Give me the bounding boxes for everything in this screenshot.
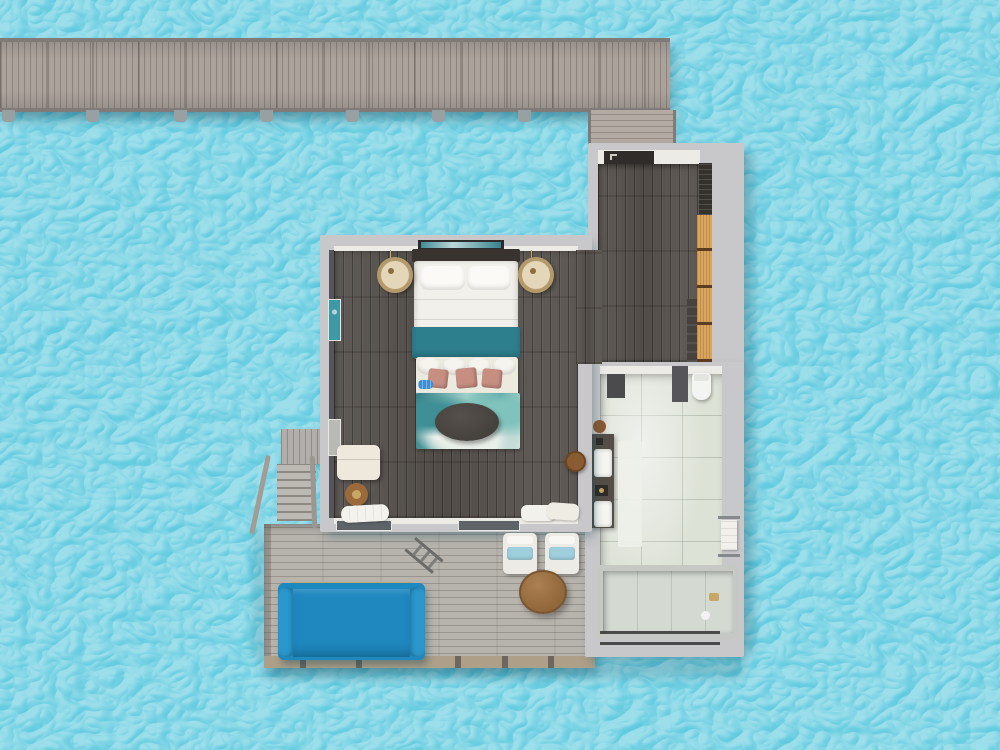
- deck-railing-post: [455, 656, 461, 668]
- ladder-rung: [412, 544, 422, 555]
- lamp-bulb: [388, 268, 394, 274]
- robe: [546, 502, 579, 521]
- daybed-arm-right: [408, 587, 425, 657]
- deck-left-edge: [264, 524, 271, 668]
- stone-strip: [687, 299, 697, 362]
- closet-shelves: [697, 215, 712, 362]
- bedroom-hall-connector: [576, 250, 602, 364]
- toilet-tank: [694, 374, 709, 381]
- coffee-table: [435, 403, 499, 441]
- lamp-bulb: [530, 268, 536, 274]
- bathroom: [585, 362, 744, 657]
- wood-tray: [593, 420, 606, 433]
- ladder-rung: [428, 557, 438, 568]
- side-table: [345, 483, 368, 506]
- robes-pile: [521, 503, 579, 523]
- deck-round-table: [519, 570, 567, 614]
- pier-piling: [518, 110, 531, 122]
- pier: [0, 38, 670, 112]
- doormat: [604, 151, 654, 164]
- floor-slats: [600, 630, 720, 645]
- glass-door-right: [458, 520, 520, 531]
- teal-bed-runner: [412, 327, 520, 358]
- villa-right-shadow: [744, 152, 755, 652]
- towel-bar: [718, 516, 740, 519]
- hanging-towels: [721, 520, 737, 550]
- lounge-chair: [545, 533, 579, 574]
- pier-piling: [260, 110, 273, 122]
- pier-piling: [432, 110, 445, 122]
- deck-left-shadow: [254, 530, 263, 662]
- pier-piling: [174, 110, 187, 122]
- wall-art-canvas: [421, 242, 501, 248]
- bath-mat: [618, 441, 642, 547]
- toilet: [692, 373, 711, 400]
- sun-daybed: [278, 583, 425, 660]
- pier-piling: [86, 110, 99, 122]
- bed-pillow: [420, 266, 465, 290]
- duvet-fold: [414, 319, 518, 320]
- pier-piling: [346, 110, 359, 122]
- accent-pillow: [481, 368, 503, 389]
- bedroom: [320, 235, 592, 532]
- window-frame-teal: [328, 299, 341, 341]
- chair-cushion-blue: [507, 547, 533, 560]
- duvet-fold: [414, 299, 518, 300]
- tub-drain: [701, 611, 710, 620]
- chair-cushion-blue: [549, 547, 575, 560]
- faucet-gold-knob: [599, 488, 604, 493]
- towel-rack: [718, 516, 740, 558]
- chair-headrest: [549, 536, 575, 544]
- lounge-chair: [503, 533, 537, 574]
- accent-pillow: [455, 367, 478, 389]
- shower-partition-left: [607, 374, 625, 398]
- ladder-rung: [420, 551, 430, 562]
- hall-floor: [598, 164, 700, 362]
- vanity-sink: [594, 501, 612, 527]
- daybed-cushion: [293, 589, 410, 657]
- bed-pillow: [467, 266, 511, 290]
- armchair: [337, 445, 380, 480]
- armchair-seam: [337, 459, 380, 460]
- tub-faucet: [709, 593, 719, 601]
- pier-piling: [2, 110, 15, 122]
- faucet-set: [595, 485, 608, 496]
- towel-pile: [341, 504, 390, 523]
- pendant-lamp-right: [518, 257, 554, 293]
- deck-railing-post: [548, 656, 554, 668]
- entry-hall: [588, 143, 744, 372]
- entry-walkway: [588, 110, 676, 145]
- villa-aerial-render: [0, 0, 1000, 750]
- vanity-counter: [590, 434, 614, 528]
- drum-stool: [565, 451, 586, 472]
- pendant-lamp-left: [377, 257, 413, 293]
- shower-partition-right: [672, 366, 688, 402]
- towel-bar: [718, 554, 740, 557]
- soap-item: [596, 438, 603, 445]
- deck-railing-post: [502, 656, 508, 668]
- doormat-logo: [610, 154, 612, 160]
- gold-tray: [352, 490, 361, 499]
- louver-panel: [699, 163, 712, 215]
- chair-headrest: [507, 536, 533, 544]
- vanity-sink: [594, 449, 612, 477]
- bathtub: [597, 565, 739, 639]
- stair-landing: [281, 429, 325, 464]
- bed-bench: [416, 357, 518, 395]
- rolled-towel-blue: [418, 380, 433, 389]
